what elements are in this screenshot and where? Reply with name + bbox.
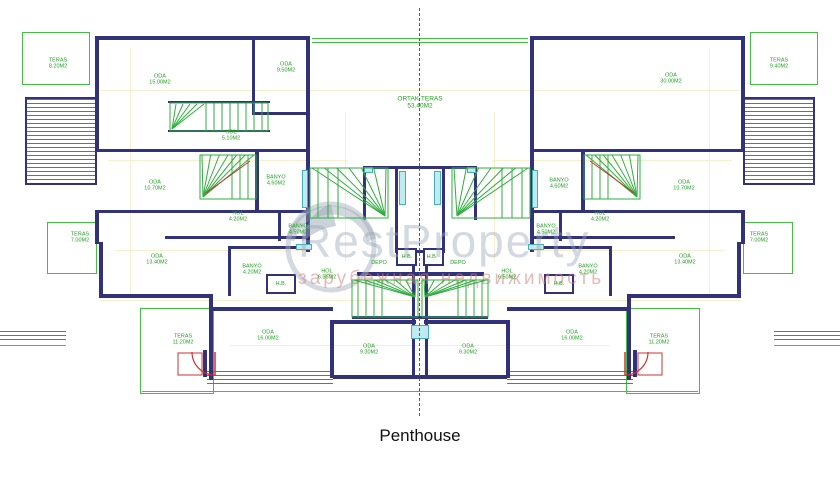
room-label-oda_tr: ODA30.00M2 bbox=[660, 73, 681, 86]
stair-line bbox=[172, 104, 204, 129]
room-label-oda_bcr: ODA9.30M2 bbox=[459, 344, 477, 357]
stair-line bbox=[424, 280, 425, 297]
room-area: 53.40M2 bbox=[397, 103, 442, 110]
room-area: 4.20M2 bbox=[578, 270, 597, 276]
room-area: 16.00M2 bbox=[257, 336, 278, 342]
room-label-banyo_lr: BANYO4.20M2 bbox=[578, 264, 597, 277]
room-area: 10.70M2 bbox=[144, 186, 165, 192]
room-area: 30.00M2 bbox=[660, 79, 681, 85]
room-name: H.B. bbox=[402, 254, 413, 260]
room-label-banyo_ll: BANYO4.20M2 bbox=[242, 264, 261, 277]
room-label-hb_l: H.B. bbox=[276, 281, 287, 287]
stair-line bbox=[202, 155, 203, 197]
room-label-oda_tc: ODA9.50M2 bbox=[277, 62, 295, 75]
room-name: DEPO bbox=[371, 260, 387, 266]
room-label-banyo_cr: BANYO4.50M2 bbox=[536, 224, 555, 237]
room-label-oda_tl: ODA15.00M2 bbox=[149, 74, 170, 87]
room-label-teras_tr: TERAS9.40M2 bbox=[770, 58, 788, 71]
room-name: H.B. bbox=[427, 254, 438, 260]
door-swing bbox=[625, 352, 648, 375]
room-area: 5.10M2 bbox=[222, 136, 240, 142]
room-area: 8.20M2 bbox=[49, 64, 67, 70]
room-label-oda_br: ODA16.00M2 bbox=[561, 330, 582, 343]
room-area: 6.56M2 bbox=[318, 275, 336, 281]
room-label-depo_r: DEPO bbox=[450, 260, 466, 266]
room-label-hol_br: HOL6.50M2 bbox=[498, 269, 516, 282]
room-area: 7.00M2 bbox=[71, 238, 89, 244]
symmetry-centerline-icon bbox=[419, 8, 420, 416]
room-label-oda_ml: ODA10.70M2 bbox=[144, 180, 165, 193]
room-label-banyo_ml: BANYO4.60M2 bbox=[266, 175, 285, 188]
room-area: 9.30M2 bbox=[360, 350, 378, 356]
room-label-teras_br: TERAS11.20M2 bbox=[649, 334, 670, 347]
stair-line bbox=[312, 168, 385, 216]
room-area: 9.50M2 bbox=[277, 68, 295, 74]
room-label-depo_l: DEPO bbox=[371, 260, 387, 266]
room-area: 11.20M2 bbox=[649, 340, 670, 346]
room-label-banyo_cl: BANYO4.50M2 bbox=[288, 224, 307, 237]
room-area: 4.50M2 bbox=[536, 230, 555, 236]
stair-winder bbox=[422, 280, 488, 317]
room-area: 4.20M2 bbox=[591, 217, 609, 223]
room-label-hb_r: H.B. bbox=[554, 281, 565, 287]
stair-line bbox=[385, 168, 386, 216]
room-area: 10.70M2 bbox=[673, 186, 694, 192]
room-name: H.B. bbox=[554, 281, 565, 287]
room-area: 13.40M2 bbox=[146, 260, 167, 266]
room-label-oda_bl: ODA16.00M2 bbox=[257, 330, 278, 343]
stair-line bbox=[454, 168, 457, 216]
room-label-teras_bl: TERAS11.20M2 bbox=[173, 334, 194, 347]
room-area: 13.40M2 bbox=[674, 260, 695, 266]
room-label-hb_c1: H.B. bbox=[402, 254, 413, 260]
room-label-hol_bl: HOL6.56M2 bbox=[318, 269, 336, 282]
plan-title: Penthouse bbox=[379, 426, 460, 446]
railing-corner bbox=[638, 353, 662, 375]
room-area: 11.20M2 bbox=[173, 340, 194, 346]
stair-line bbox=[637, 155, 638, 197]
room-label-oda_lr: ODA13.40M2 bbox=[674, 254, 695, 267]
room-label-teras_tl: TERAS8.20M2 bbox=[49, 58, 67, 71]
room-label-hol_mr: HOL4.20M2 bbox=[591, 211, 609, 224]
room-area: 7.00M2 bbox=[750, 238, 768, 244]
plan-linework bbox=[0, 0, 840, 480]
room-label-banyo_mr: BANYO4.60M2 bbox=[549, 178, 568, 191]
room-label-oda_bcl: ODA9.30M2 bbox=[360, 344, 378, 357]
room-area: 4.60M2 bbox=[266, 181, 285, 187]
stair-line bbox=[415, 280, 416, 297]
room-area: 4.20M2 bbox=[242, 270, 261, 276]
room-label-ortak: ORTAK TERAS53.40M2 bbox=[397, 96, 442, 111]
room-label-oda_mr: ODA10.70M2 bbox=[673, 180, 694, 193]
room-name: DEPO bbox=[450, 260, 466, 266]
stair-line bbox=[375, 280, 415, 297]
room-name: ORTAK TERAS bbox=[397, 96, 442, 103]
room-area: 9.40M2 bbox=[770, 64, 788, 70]
floor-plan: RestProperty зарубежная недвижимость Pen… bbox=[0, 0, 840, 480]
room-label-oda_ll: ODA13.40M2 bbox=[146, 254, 167, 267]
stair-line bbox=[457, 168, 503, 216]
room-label-hol_ml: HOL4.20M2 bbox=[229, 211, 247, 224]
room-area: 9.30M2 bbox=[459, 350, 477, 356]
room-area: 4.20M2 bbox=[229, 217, 247, 223]
room-name: H.B. bbox=[276, 281, 287, 287]
stair-winder bbox=[352, 280, 418, 317]
room-area: 4.60M2 bbox=[549, 184, 568, 190]
stair-line bbox=[337, 168, 385, 216]
railing-corner bbox=[178, 353, 202, 375]
room-area: 16.00M2 bbox=[561, 336, 582, 342]
room-area: 4.50M2 bbox=[288, 230, 307, 236]
room-label-hol_tl: HOL5.10M2 bbox=[222, 130, 240, 143]
room-area: 6.50M2 bbox=[498, 275, 516, 281]
door-swing bbox=[192, 352, 215, 375]
room-label-hb_c2: H.B. bbox=[427, 254, 438, 260]
room-label-teras_mr: TERAS7.00M2 bbox=[750, 232, 768, 245]
room-area: 15.00M2 bbox=[149, 80, 170, 86]
room-label-teras_ml: TERAS7.00M2 bbox=[71, 232, 89, 245]
